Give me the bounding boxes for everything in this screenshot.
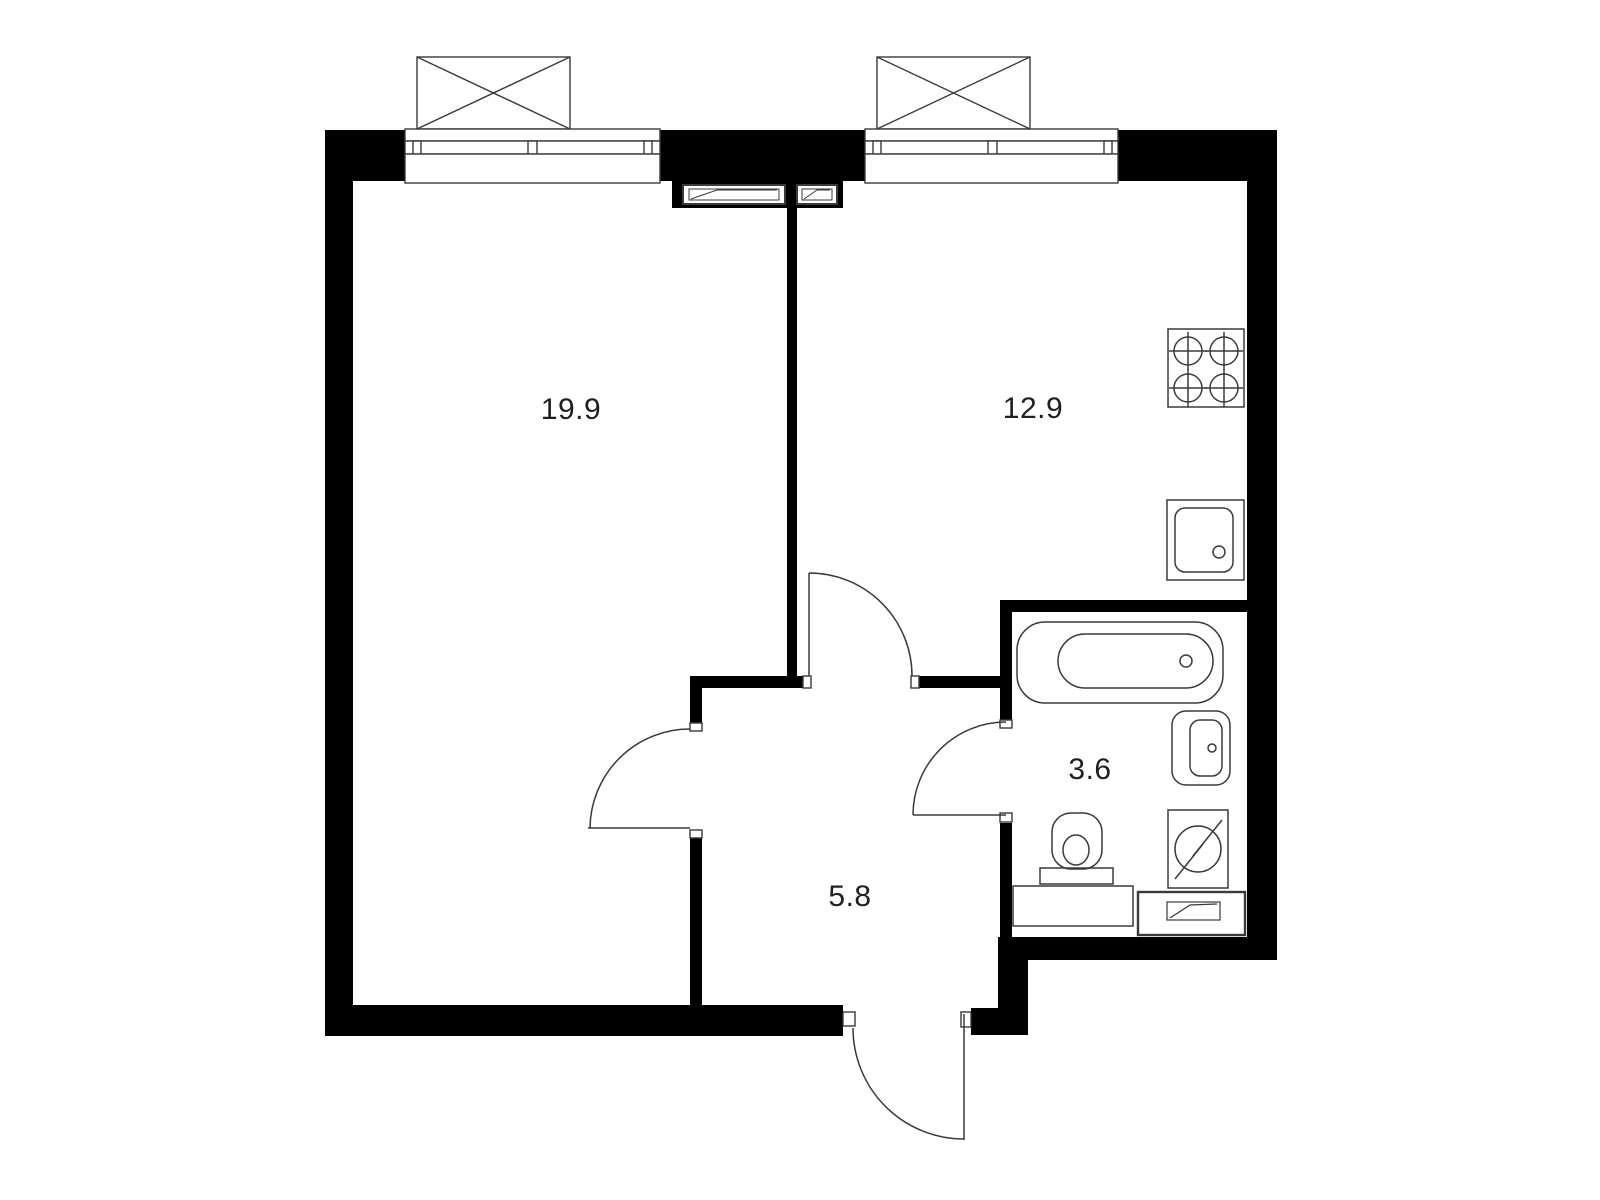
floor-plan-canvas: 19.9 12.9 3.6 5.8 [0,0,1600,1200]
wall-partition-living-kitchen [787,208,797,676]
wall-outer-left [325,130,353,1036]
window-mullion [644,141,652,154]
vent-duct-1 [683,185,785,204]
wall-entrance-step [971,1008,998,1035]
wall-hall-partition-upper [690,688,702,723]
wall-bathroom-bottom [1000,937,1277,960]
wall-hall-top-b [919,676,1000,688]
wall-top-pier [658,130,865,181]
window-outer-sill [405,129,660,141]
door-jamb [690,830,702,838]
floor-plan: 19.9 12.9 3.6 5.8 [0,0,1600,1200]
wall-bathroom-left-lower [1000,823,1012,937]
door-jamb [1000,720,1012,728]
wall-entrance-column [998,937,1028,1035]
wall-bathroom-left-upper [1000,600,1012,720]
kitchen-area-label: 12.9 [1003,392,1063,425]
wall-outer-right [1247,130,1277,960]
door-jamb [690,723,702,731]
door-jamb [961,1012,971,1027]
window-mullion [528,141,537,154]
vent-duct-2 [797,185,837,204]
wall-hall-partition-lower [690,838,702,1005]
window-mullion [1104,141,1112,154]
bathroom-area-label: 3.6 [1068,753,1111,786]
wall-outer-bottom [325,1005,843,1036]
window-inner-sill [865,154,1118,183]
window-outer-sill [865,129,1118,141]
wall-hall-top-a [690,676,803,688]
wall-top-left [325,130,407,181]
window-inner-sill [405,154,660,183]
wall-bathroom-top [1000,600,1247,612]
door-jamb [911,676,919,688]
window-mullion [413,141,421,154]
door-jamb [843,1012,855,1026]
hallway-area-label: 5.8 [828,880,871,913]
vent-inner [802,189,832,200]
window-mullion [988,141,997,154]
window-mullion [873,141,881,154]
door-jamb [803,676,811,688]
living-room-area-label: 19.9 [541,393,601,426]
